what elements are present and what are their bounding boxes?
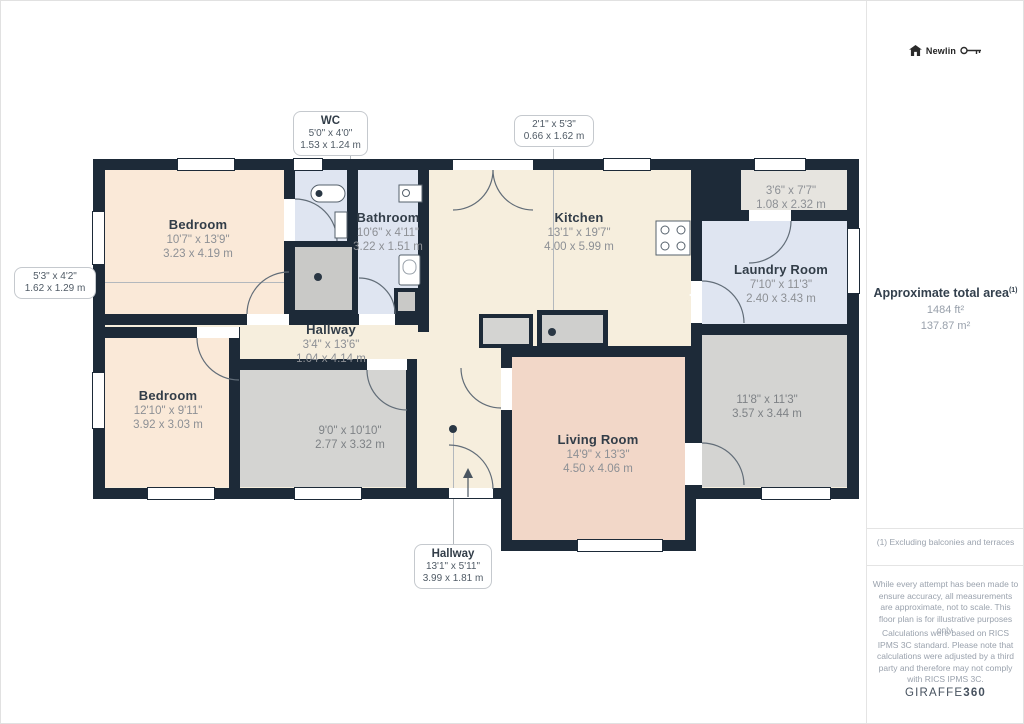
footnote-divider-top <box>867 528 1024 529</box>
label-bathroom: Bathroom 10'6" x 4'11" 3.22 x 1.51 m <box>353 210 423 253</box>
label-living: Living Room 14'9" x 13'3" 4.50 x 4.06 m <box>558 432 639 475</box>
house-icon <box>909 45 922 56</box>
wall-living-top <box>501 346 696 357</box>
label-room-top-right: 3'6" x 7'7" 1.08 x 2.32 m <box>756 183 826 211</box>
window <box>754 158 806 171</box>
door-opening-bedroom-top <box>247 314 289 325</box>
window <box>92 211 105 265</box>
door-opening-kitchen-double <box>453 160 533 170</box>
door-opening-front <box>449 488 493 498</box>
total-area-block: Approximate total area(1) 1484 ft² 137.8… <box>867 286 1024 332</box>
callout-left-closet: 5'3" x 4'2" 1.62 x 1.29 m <box>14 267 96 299</box>
footnote: (1) Excluding balconies and terraces <box>867 537 1024 549</box>
callout-wc: WC 5'0" x 4'0" 1.53 x 1.24 m <box>293 111 368 156</box>
label-laundry: Laundry Room 7'10" x 11'3" 2.40 x 3.43 m <box>734 262 828 305</box>
window <box>177 158 235 171</box>
label-room-bottom-right: 11'8" x 11'3" 3.57 x 3.44 m <box>732 392 802 420</box>
key-icon <box>960 46 982 55</box>
kitchen-cabinet <box>479 314 533 348</box>
closet-left <box>284 241 358 316</box>
window <box>293 158 323 171</box>
agency-logo-text: Newlin <box>926 46 956 56</box>
total-area-footnote-marker: (1) <box>1009 287 1018 294</box>
giraffe360-watermark: GIRAFFE360 <box>867 687 1024 699</box>
footnote-divider-bottom <box>867 565 1024 566</box>
door-opening-living <box>501 368 512 410</box>
total-area-metric: 137.87 m² <box>867 320 1024 332</box>
total-area-label: Approximate total area(1) <box>867 286 1024 300</box>
wall-bedroom-wc <box>284 170 295 316</box>
leader-left-closet <box>95 282 307 283</box>
door-opening-room-center <box>367 359 407 370</box>
total-area-imperial: 1484 ft² <box>867 304 1024 316</box>
wall-bedroom-room-divider <box>229 327 240 488</box>
agency-logo: Newlin <box>867 45 1024 56</box>
kitchen-closet <box>537 310 608 348</box>
label-bedroom-top: Bedroom 10'7" x 13'9" 3.23 x 4.19 m <box>163 217 233 260</box>
label-kitchen: Kitchen 13'1" x 19'7" 4.00 x 5.99 m <box>544 210 614 253</box>
bathroom-cabinet <box>394 288 419 315</box>
door-opening-wc <box>284 199 295 241</box>
window <box>603 158 651 171</box>
room-wc-fill <box>295 170 347 241</box>
window <box>92 372 105 429</box>
door-opening-room-bottom-right <box>685 443 702 485</box>
window <box>761 487 831 500</box>
label-bedroom-bottom: Bedroom 12'10" x 9'11" 3.92 x 3.03 m <box>133 388 203 431</box>
label-hallway-center: Hallway 3'4" x 13'6" 1.04 x 4.14 m <box>296 322 366 365</box>
wall-living-bump-right <box>685 488 696 551</box>
window <box>577 539 663 552</box>
sidebar-divider <box>866 1 867 724</box>
door-opening-bedroom-bottom <box>197 327 239 338</box>
callout-kitchen-closet: 2'1" x 5'3" 0.66 x 1.62 m <box>514 115 594 147</box>
window <box>147 487 215 500</box>
callout-hallway-entry: Hallway 13'1" x 5'11" 3.99 x 1.81 m <box>414 544 492 589</box>
wall-room-center-right <box>406 359 417 488</box>
label-room-center: 9'0" x 10'10" 2.77 x 3.32 m <box>315 423 385 451</box>
door-opening-laundry <box>691 281 702 323</box>
floorplan-page: Bedroom 10'7" x 13'9" 3.23 x 4.19 m Bath… <box>0 0 1024 724</box>
window <box>294 487 362 500</box>
disclaimer-rics: Calculations were based on RICS IPMS 3C … <box>872 628 1019 686</box>
wall-laundry-bottom <box>691 324 859 335</box>
door-opening-room-top-right <box>749 210 791 221</box>
window <box>847 228 860 294</box>
